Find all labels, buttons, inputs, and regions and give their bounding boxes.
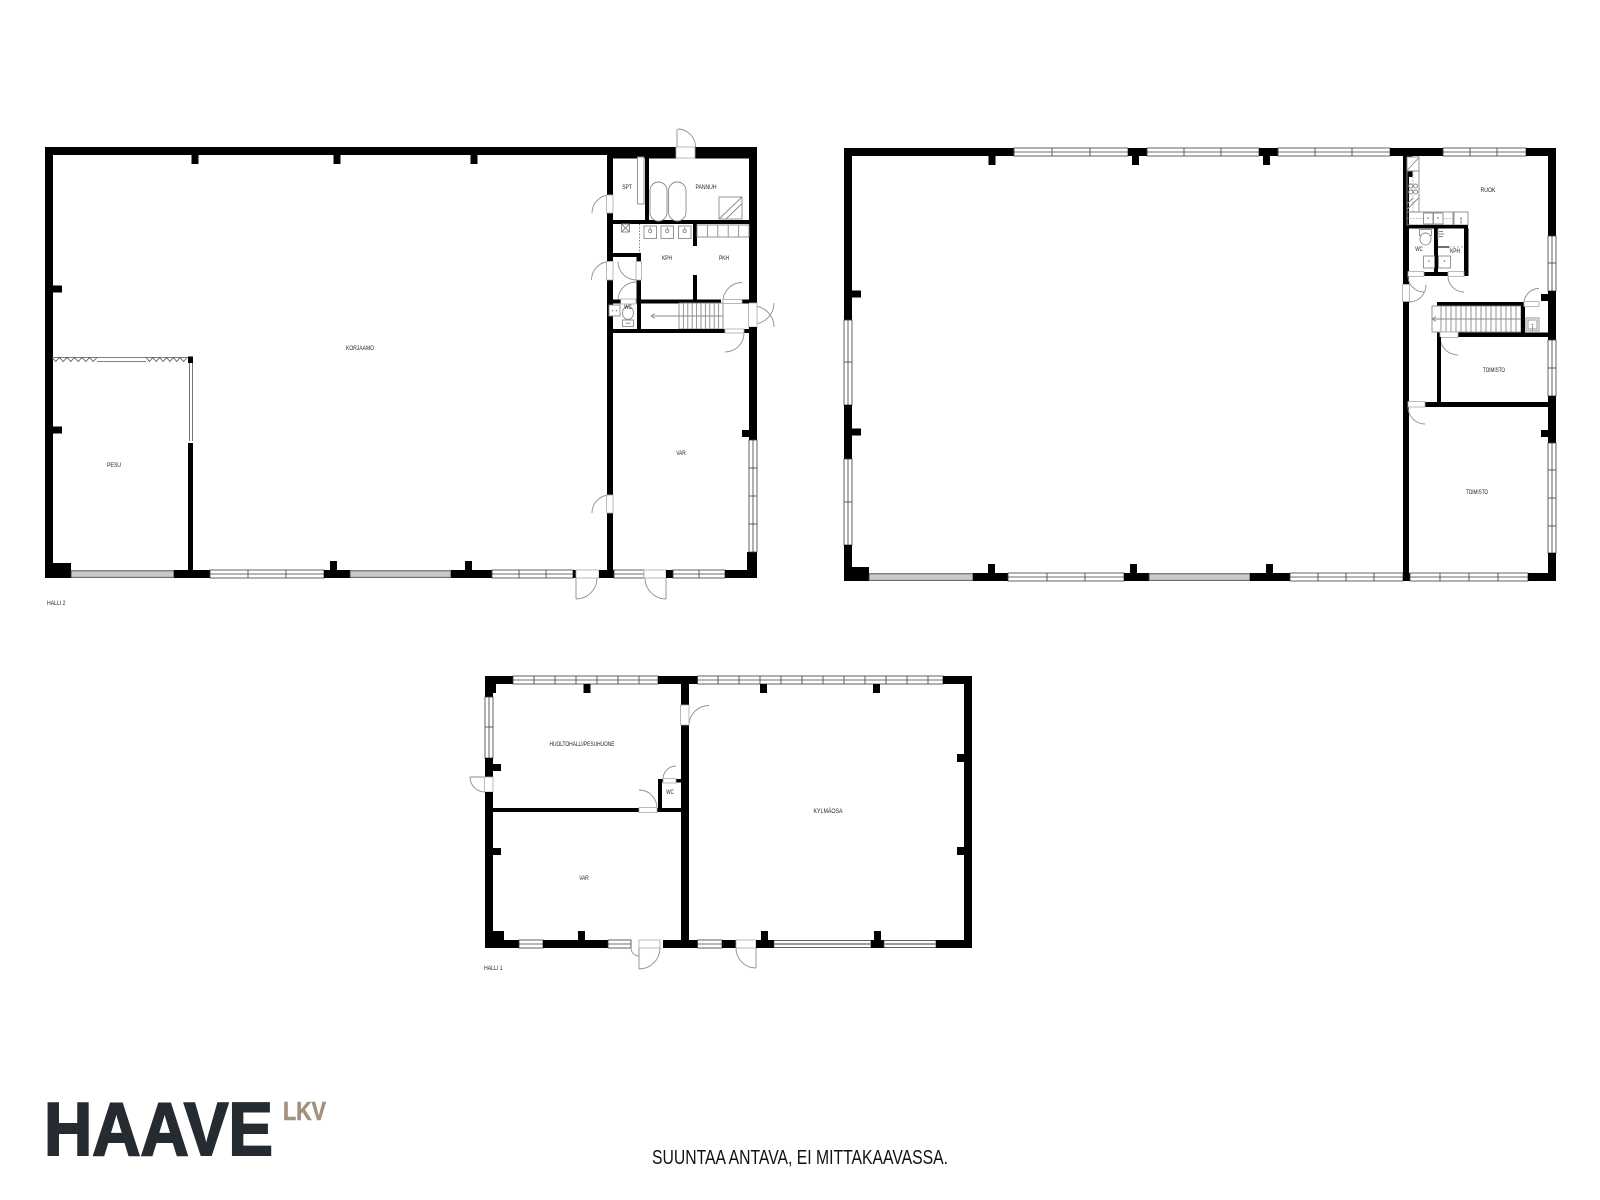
svg-text:WC: WC [624,304,632,311]
svg-text:LKV: LKV [283,1096,327,1126]
svg-text:SPT: SPT [622,184,632,191]
svg-text:PESU: PESU [107,462,121,469]
svg-text:KORJAAMO: KORJAAMO [346,345,374,352]
svg-text:KYLMÄOSA: KYLMÄOSA [814,808,844,815]
svg-text:HALLI 1: HALLI 1 [484,965,503,972]
svg-text:HALLI 2: HALLI 2 [47,600,66,607]
svg-text:WC: WC [1415,246,1423,253]
svg-text:HAAVE: HAAVE [44,1087,273,1171]
svg-text:KPH: KPH [662,255,672,262]
svg-text:VAR: VAR [676,450,686,457]
svg-text:VAR: VAR [579,875,589,882]
svg-text:PANNUH: PANNUH [696,184,717,191]
svg-text:TOIMISTO: TOIMISTO [1483,367,1505,374]
svg-text:SUUNTAA ANTAVA, EI MITTAKAAVAS: SUUNTAA ANTAVA, EI MITTAKAAVASSA. [652,1146,948,1169]
svg-text:KPH: KPH [1450,248,1460,255]
svg-text:RUOK: RUOK [1481,187,1497,194]
svg-text:TOIMISTO: TOIMISTO [1466,489,1488,496]
svg-text:PKH: PKH [719,255,729,262]
svg-text:HUOLTOHALLI/PESUHUONE: HUOLTOHALLI/PESUHUONE [550,741,615,748]
svg-text:WC: WC [666,789,674,796]
